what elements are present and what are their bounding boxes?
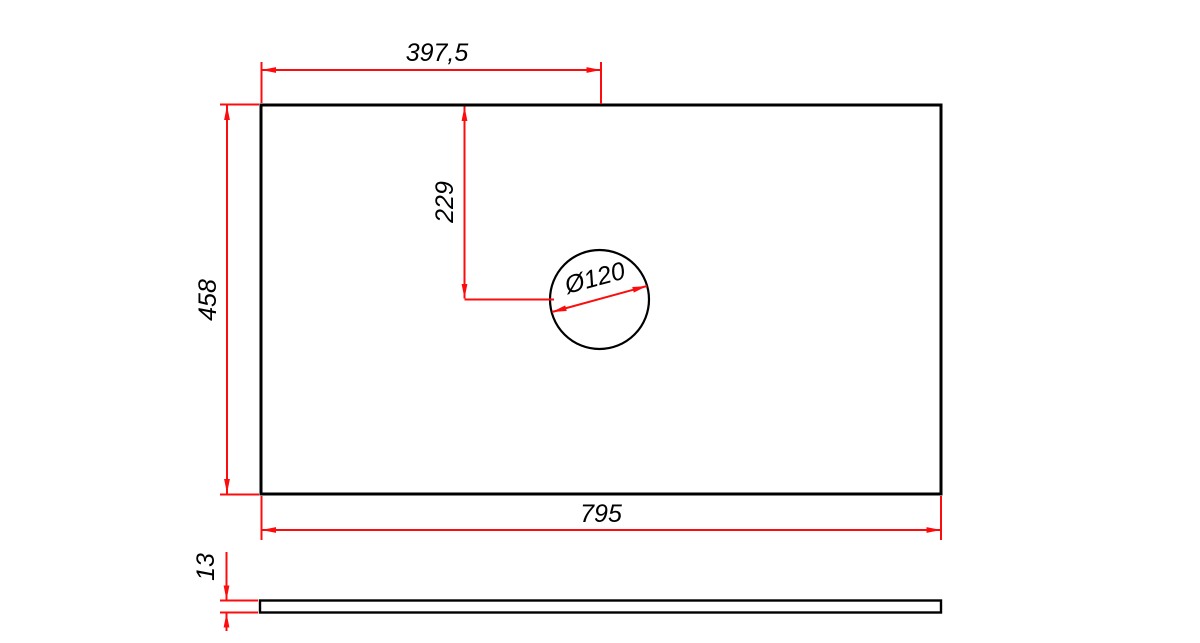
dimension-bottom-width: 795 — [262, 496, 942, 540]
dimension-left-height: 458 — [194, 105, 259, 495]
dimension-label-left-height: 458 — [194, 279, 222, 321]
dimension-label-top-width: 397,5 — [406, 39, 469, 67]
plate-side-view-outline — [260, 601, 941, 613]
dimension-hole-diameter: Ø120 — [552, 257, 647, 312]
technical-drawing-page: 397,5 458 229 Ø120 795 — [0, 0, 1200, 643]
dimension-hole-offset: 229 — [431, 107, 554, 300]
dimension-top-width: 397,5 — [262, 39, 602, 104]
dimension-label-hole-offset: 229 — [431, 181, 459, 224]
dimension-label-thickness: 13 — [192, 553, 220, 581]
dimension-label-bottom-width: 795 — [580, 500, 622, 528]
technical-drawing-canvas: 397,5 458 229 Ø120 795 — [0, 0, 1200, 643]
dimension-thickness: 13 — [192, 552, 258, 631]
